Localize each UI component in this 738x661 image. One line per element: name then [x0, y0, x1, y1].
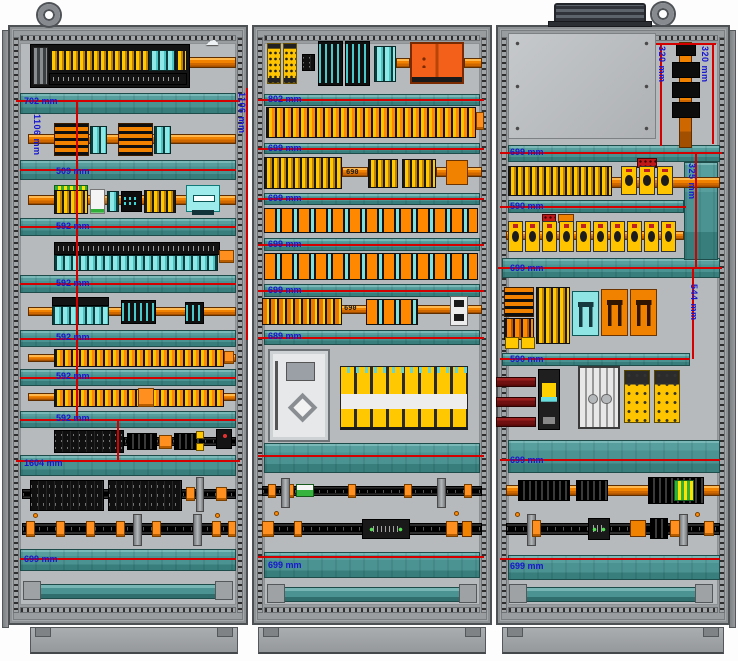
relay-module-yellow [267, 43, 281, 84]
rail-clamp [216, 487, 227, 501]
motor-breaker [661, 221, 676, 252]
mounting-bracket [281, 478, 290, 508]
busbar-device [362, 519, 410, 539]
power-supply [410, 42, 464, 84]
contactor-orange [54, 123, 89, 156]
perforated-strip-bottom [20, 607, 236, 613]
rail-clamp [404, 484, 412, 498]
fixing-screw [515, 512, 520, 517]
mounting-bracket [193, 514, 202, 546]
bottom-wiring-duct [516, 587, 706, 602]
bottom-wiring-duct [274, 587, 470, 602]
terminal-strip-cyan [154, 126, 171, 154]
plc-module [318, 41, 343, 86]
fuse-holder [538, 369, 560, 430]
bottom-wiring-duct [30, 584, 226, 599]
terminal-strip-orange-cyan [366, 299, 418, 325]
rail-clamp [224, 351, 234, 364]
dimension-line [656, 43, 716, 45]
contactor-orange [504, 287, 534, 317]
dimension-label: 590 mm [510, 201, 554, 211]
roof-vent [554, 3, 646, 23]
mounting-bracket [196, 477, 204, 512]
terminal-strip-yellow-orange [266, 107, 476, 138]
dimension-label: 1604 mm [24, 458, 68, 468]
plc-module [121, 300, 156, 324]
dimension-line [258, 455, 484, 457]
motor-breaker [657, 166, 673, 195]
module-orange [630, 520, 646, 537]
motor-breaker [644, 221, 659, 252]
dimension-label: 699 mm [268, 560, 312, 570]
motor-breaker [610, 221, 625, 252]
relay-module-yellow [283, 43, 297, 84]
dimension-label: 802 mm [268, 94, 312, 104]
dimension-line [258, 556, 484, 558]
dimension-label: 699 mm [268, 193, 312, 203]
dimension-line [20, 338, 236, 340]
motor-breaker [593, 221, 608, 252]
plc-module [345, 41, 370, 86]
panel-meter [186, 185, 220, 212]
terminal-strip-orange-yellow [262, 298, 342, 325]
dimension-label: 699 mm [268, 143, 312, 153]
terminal-strip-black [518, 480, 570, 501]
dimension-label: 689 mm [268, 331, 312, 341]
dimension-label: 592 mm [56, 221, 100, 231]
dimension-line [117, 419, 119, 461]
rail-clamp [476, 112, 484, 130]
fuse-terminal-bank [108, 480, 182, 511]
fuse-terminal-bank [30, 480, 104, 511]
rail-clamp [446, 521, 458, 537]
cabinet-side-wall [729, 30, 736, 628]
motor-breaker [525, 221, 540, 252]
module-white [90, 189, 105, 214]
rail-clamp [464, 484, 472, 498]
relay-bank [340, 366, 468, 430]
terminal-strip-yellow [402, 159, 436, 188]
rail-length-text: 690 [346, 168, 366, 176]
io-rack [52, 297, 109, 306]
terminal-strip-cyan [52, 306, 109, 325]
fuse-terminal-bank [54, 430, 124, 453]
dimension-label: 1106 mm [236, 92, 246, 140]
contactor-orange [118, 123, 153, 156]
terminal-strip-black [650, 518, 668, 539]
dimension-label: 320 mm [699, 46, 709, 94]
main-switch [578, 366, 620, 429]
breaker-orange [601, 289, 628, 336]
wiring-duct [264, 443, 480, 473]
rail-clamp [228, 521, 236, 537]
motor-breaker [621, 166, 637, 195]
plinth-base [502, 627, 724, 654]
fixing-screw [33, 513, 38, 518]
plinth-base [30, 627, 238, 654]
terminal-strip-yellow [536, 287, 570, 344]
fixing-screw [454, 511, 459, 516]
mounting-bracket [437, 478, 446, 508]
contactor-yellow [624, 370, 650, 423]
dimension-label: 325 mm [686, 163, 696, 211]
dimension-label: 592 mm [56, 332, 100, 342]
rail-clamp [348, 484, 356, 498]
terminal-strip-black [576, 480, 608, 501]
rail-clamp [294, 521, 302, 537]
fixing-screw [215, 513, 220, 518]
rail-clamp [212, 521, 221, 537]
terminal-strip-orange-cyan [264, 208, 478, 233]
perforated-strip-top [264, 35, 480, 41]
ground-terminal [674, 480, 694, 501]
protection-relay [268, 349, 330, 442]
mounting-bracket [133, 514, 142, 546]
dimension-label: 699 mm [510, 147, 554, 157]
motor-breaker [542, 221, 557, 252]
module-orange [446, 160, 468, 185]
perforated-strip-bottom [264, 607, 480, 613]
terminal-strip-yellow [368, 159, 398, 188]
module-yellow [196, 443, 204, 451]
module-yellow [505, 337, 519, 349]
dimension-label: 699 mm [268, 285, 312, 295]
dimension-label: 699 mm [510, 561, 554, 571]
dimension-label: 590 mm [510, 354, 554, 364]
roof-vent-base [548, 21, 652, 27]
motor-breaker [627, 221, 642, 252]
terminal-strip-yellow [175, 50, 187, 71]
fixing-screw [274, 511, 279, 516]
current-transformer [676, 44, 696, 56]
dimension-label: 702 mm [24, 96, 68, 106]
dimension-label: 592 mm [56, 413, 100, 423]
plinth-base [258, 627, 486, 654]
rail-clamp [56, 521, 65, 537]
current-transformer [672, 82, 700, 98]
terminal-strip-yellow [54, 190, 88, 214]
terminal-strip-yellow [508, 166, 612, 196]
busbar-device [588, 518, 610, 540]
dimension-line [20, 169, 236, 171]
rail-clamp [670, 520, 680, 537]
motor-breaker [508, 221, 523, 252]
dimension-label: 699 mm [510, 263, 554, 273]
rail-clamp [186, 487, 195, 501]
display-module [121, 191, 142, 212]
cabinet-layout-drawing: 690690702 mm1106 mm509 mm592 mm592 mm592… [0, 0, 738, 661]
dimension-line [712, 44, 714, 144]
busbar [262, 486, 482, 496]
mounting-bracket [679, 514, 688, 546]
dimension-label: 509 mm [56, 166, 100, 176]
rail-clamp [138, 388, 154, 407]
dimension-label: 592 mm [56, 371, 100, 381]
perforated-strip-top [20, 35, 236, 41]
terminal-strip-yellow [49, 50, 149, 71]
dimension-line [20, 377, 236, 379]
plc-module [185, 302, 204, 324]
labeled-terminal-strip [49, 73, 187, 85]
rail-clamp [262, 521, 274, 537]
dimension-label: 544 mm [688, 284, 698, 332]
terminal-strip-cyan [90, 126, 107, 154]
end-module [216, 429, 232, 449]
lifting-eyebolt [652, 3, 674, 25]
dimension-label: 699 mm [268, 239, 312, 249]
labeled-terminal-strip [54, 242, 220, 255]
dimension-label: 320 mm [656, 46, 666, 94]
terminal-strip-orange-cyan [264, 253, 478, 280]
module-yellow [196, 431, 204, 439]
dimension-label: 699 mm [24, 554, 68, 564]
fuse-terminal-bank [302, 54, 315, 71]
dimension-label: 1106 mm [31, 114, 41, 162]
terminal-strip-yellow-orange [54, 349, 224, 367]
fixing-screw [695, 512, 700, 517]
motor-breaker [639, 166, 655, 195]
terminal-strip-black [127, 433, 157, 450]
power-modules [33, 47, 48, 85]
lifting-eyebolt [38, 4, 60, 26]
blank-mounting-plate [508, 33, 656, 139]
dimension-label: 592 mm [56, 278, 100, 288]
motor-breaker [576, 221, 591, 252]
current-transformer [672, 102, 700, 118]
module-orange [462, 521, 472, 537]
rail-clamp [26, 521, 35, 537]
dimension-line [500, 558, 720, 560]
din-rail [396, 58, 410, 68]
terminal-strip-yellow [264, 157, 342, 189]
changeover-module [450, 296, 468, 326]
terminal-strip-cyan [107, 191, 119, 212]
busbar [22, 523, 236, 535]
rail-length-text: 690 [344, 304, 364, 312]
terminal-strip-cyan [374, 46, 396, 82]
rail-clamp [116, 521, 125, 537]
dimension-line [20, 283, 236, 285]
dimension-label: 699 mm [510, 455, 554, 465]
busbar-red [496, 417, 536, 427]
terminal-strip-cyan [54, 255, 218, 271]
rail-clamp [159, 435, 172, 449]
breaker-cyan [572, 291, 599, 336]
din-rail [464, 58, 482, 68]
contactor-yellow [654, 370, 680, 423]
rail-clamp [219, 250, 234, 263]
module-yellow [521, 337, 535, 349]
busbar-red [496, 377, 536, 387]
din-rail [188, 57, 236, 68]
rail-clamp [152, 521, 161, 537]
perforated-strip-left [13, 37, 19, 613]
cloud-icon [205, 33, 221, 45]
terminal-strip-yellow [144, 190, 176, 213]
rail-clamp [268, 484, 276, 498]
rail-clamp [704, 521, 714, 536]
label-chip [296, 484, 314, 497]
breaker-orange [630, 289, 657, 336]
terminal-strip-cyan [149, 50, 175, 71]
motor-breaker [559, 221, 574, 252]
current-transformer [672, 62, 700, 78]
perforated-strip-bottom [508, 607, 718, 613]
rail-clamp [532, 520, 541, 537]
dimension-line [20, 419, 236, 421]
rail-clamp [86, 521, 95, 537]
dimension-line [20, 226, 236, 228]
busbar-red [496, 397, 536, 407]
